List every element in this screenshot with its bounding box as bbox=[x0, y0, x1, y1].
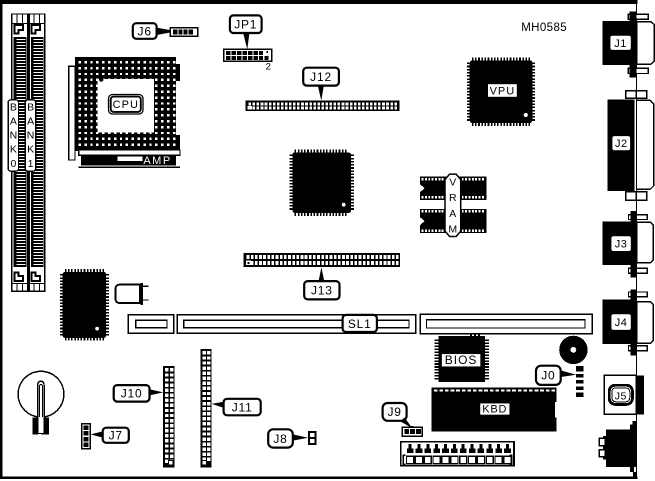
svg-text:N: N bbox=[27, 130, 35, 142]
svg-text:1: 1 bbox=[28, 158, 34, 170]
svg-text:J5: J5 bbox=[615, 391, 627, 403]
svg-text:J11: J11 bbox=[232, 400, 253, 414]
svg-text:J4: J4 bbox=[615, 317, 628, 329]
svg-text:JP1: JP1 bbox=[234, 18, 257, 32]
svg-text:J8: J8 bbox=[273, 432, 287, 446]
svg-text:VPU: VPU bbox=[490, 86, 516, 98]
svg-text:J6: J6 bbox=[138, 24, 152, 38]
svg-text:N: N bbox=[10, 130, 18, 142]
svg-text:KBD: KBD bbox=[482, 404, 507, 416]
svg-text:J13: J13 bbox=[311, 284, 333, 298]
svg-text:J12: J12 bbox=[310, 70, 332, 84]
svg-text:K: K bbox=[10, 144, 17, 156]
svg-text:J10: J10 bbox=[121, 387, 143, 401]
svg-text:V: V bbox=[449, 176, 456, 188]
svg-text:J1: J1 bbox=[614, 38, 627, 50]
svg-text:SL1: SL1 bbox=[348, 317, 372, 331]
svg-text:2: 2 bbox=[266, 62, 271, 73]
svg-text:J0: J0 bbox=[541, 369, 555, 383]
svg-text:A: A bbox=[10, 116, 17, 128]
svg-text:AMP: AMP bbox=[143, 155, 171, 167]
svg-text:J2: J2 bbox=[615, 138, 628, 150]
svg-text:J3: J3 bbox=[615, 239, 628, 251]
svg-text:K: K bbox=[27, 144, 34, 156]
svg-text:R: R bbox=[449, 192, 457, 204]
svg-text:J9: J9 bbox=[387, 405, 401, 419]
svg-text:M: M bbox=[448, 224, 457, 236]
svg-text:BIOS: BIOS bbox=[445, 353, 478, 367]
svg-text:MH0585: MH0585 bbox=[521, 22, 567, 34]
svg-text:B: B bbox=[10, 101, 17, 113]
svg-text:CPU: CPU bbox=[113, 99, 139, 111]
svg-text:A: A bbox=[27, 116, 34, 128]
svg-text:0: 0 bbox=[10, 158, 16, 170]
svg-text:B: B bbox=[27, 101, 34, 113]
svg-text:A: A bbox=[449, 208, 456, 220]
svg-text:J7: J7 bbox=[109, 429, 123, 443]
